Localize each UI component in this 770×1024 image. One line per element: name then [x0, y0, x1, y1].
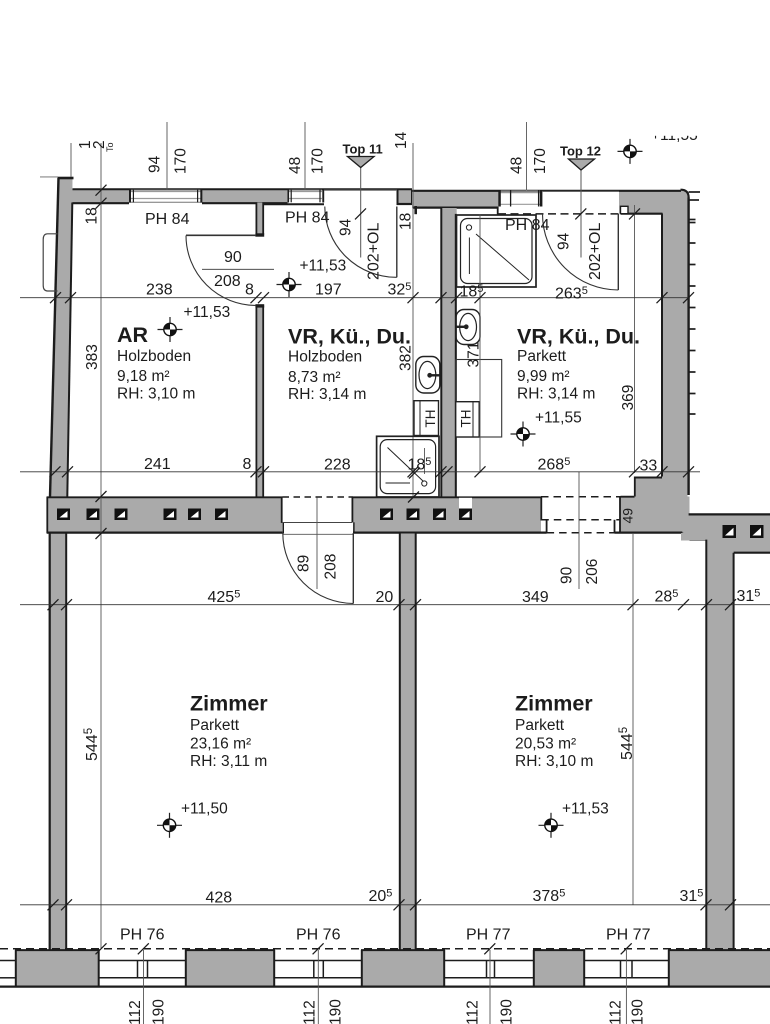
- svg-text:TH: TH: [459, 410, 474, 428]
- svg-text:23,16 m²: 23,16 m²: [190, 736, 251, 753]
- svg-text:PH 76: PH 76: [120, 927, 165, 944]
- svg-text:94: 94: [147, 155, 164, 173]
- svg-text:89: 89: [296, 555, 313, 572]
- svg-text:202+OL: 202+OL: [366, 223, 383, 280]
- svg-text:PH 84: PH 84: [505, 217, 550, 234]
- svg-text:Zimmer: Zimmer: [515, 692, 593, 716]
- svg-text:VR, Kü., Du.: VR, Kü., Du.: [288, 325, 411, 349]
- svg-text:TH: TH: [423, 410, 438, 428]
- svg-text:208: 208: [323, 554, 340, 580]
- svg-text:+11,53: +11,53: [300, 258, 347, 275]
- svg-text:8: 8: [243, 456, 252, 473]
- svg-text:228: 228: [324, 457, 351, 474]
- svg-text:190: 190: [630, 999, 647, 1024]
- svg-text:383: 383: [84, 344, 101, 370]
- svg-text:190: 190: [328, 999, 345, 1024]
- svg-text:190: 190: [151, 999, 168, 1024]
- svg-text:Parkett: Parkett: [515, 717, 565, 734]
- svg-text:369: 369: [620, 385, 637, 411]
- svg-text:349: 349: [522, 589, 549, 606]
- svg-text:PH 84: PH 84: [145, 211, 190, 228]
- svg-text:20,53 m²: 20,53 m²: [515, 736, 576, 753]
- svg-text:PH 77: PH 77: [466, 927, 511, 944]
- svg-text:206: 206: [584, 559, 601, 585]
- svg-text:8: 8: [245, 282, 254, 299]
- svg-text:AR: AR: [117, 323, 149, 347]
- svg-text:112: 112: [302, 1000, 319, 1024]
- svg-text:Zimmer: Zimmer: [190, 692, 268, 716]
- svg-text:382: 382: [398, 345, 415, 371]
- svg-text:112: 112: [465, 1000, 482, 1024]
- svg-text:112: 112: [608, 1000, 625, 1024]
- svg-text:Top 12: Top 12: [560, 144, 601, 159]
- svg-text:+11,53: +11,53: [562, 801, 609, 818]
- svg-text:+11,53: +11,53: [184, 304, 231, 321]
- svg-text:49: 49: [620, 508, 636, 524]
- svg-text:18: 18: [84, 207, 101, 224]
- svg-text:8,73 m²: 8,73 m²: [288, 369, 341, 386]
- svg-text:9,99 m²: 9,99 m²: [517, 368, 570, 385]
- svg-text:PH 77: PH 77: [606, 927, 651, 944]
- svg-text:PH 84: PH 84: [285, 210, 330, 227]
- svg-text:48: 48: [509, 157, 526, 174]
- svg-text:RH: 3,14 m: RH: 3,14 m: [288, 386, 366, 403]
- svg-text:197: 197: [315, 282, 342, 299]
- svg-text:PH 76: PH 76: [296, 927, 341, 944]
- svg-text:VR, Kü., Du.: VR, Kü., Du.: [517, 325, 640, 349]
- svg-text:94: 94: [556, 232, 573, 250]
- svg-text:+11,50: +11,50: [181, 801, 228, 818]
- svg-text:33: 33: [640, 458, 658, 475]
- svg-text:Holzboden: Holzboden: [117, 348, 191, 365]
- svg-text:170: 170: [310, 148, 327, 174]
- svg-text:Parkett: Parkett: [190, 717, 240, 734]
- svg-text:241: 241: [144, 456, 171, 473]
- svg-text:428: 428: [206, 890, 233, 907]
- svg-text:14: 14: [393, 131, 410, 149]
- svg-text:112: 112: [127, 1000, 144, 1024]
- svg-text:170: 170: [173, 148, 190, 174]
- svg-text:RH: 3,11 m: RH: 3,11 m: [190, 753, 267, 770]
- svg-text:RH: 3,14 m: RH: 3,14 m: [517, 386, 595, 403]
- svg-text:To: To: [105, 142, 115, 152]
- svg-text:94: 94: [338, 218, 355, 236]
- svg-text:9,18 m²: 9,18 m²: [117, 368, 170, 385]
- svg-text:170: 170: [532, 148, 549, 174]
- svg-text:238: 238: [146, 282, 173, 299]
- svg-text:190: 190: [499, 999, 516, 1024]
- svg-text:20: 20: [376, 589, 394, 606]
- svg-text:Holzboden: Holzboden: [288, 349, 362, 366]
- svg-text:Parkett: Parkett: [517, 348, 567, 365]
- svg-text:RH: 3,10 m: RH: 3,10 m: [515, 753, 593, 770]
- svg-text:+11,55: +11,55: [535, 410, 582, 427]
- svg-text:208: 208: [214, 273, 241, 290]
- svg-text:Top 11: Top 11: [343, 142, 383, 157]
- svg-text:18: 18: [398, 213, 415, 230]
- svg-text:371: 371: [466, 342, 483, 368]
- svg-text:RH: 3,10 m: RH: 3,10 m: [117, 386, 195, 403]
- svg-text:202+OL: 202+OL: [587, 223, 604, 280]
- svg-text:90: 90: [224, 249, 242, 266]
- svg-text:48: 48: [287, 157, 304, 174]
- svg-text:90: 90: [559, 566, 576, 584]
